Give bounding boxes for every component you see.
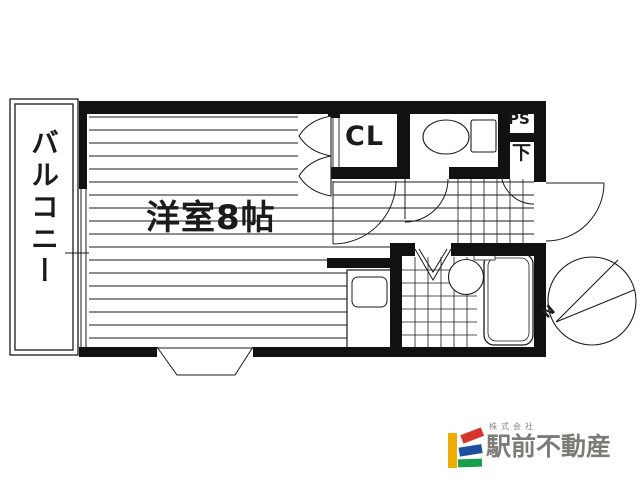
logo-bar-yellow (448, 433, 457, 468)
kitchen-sink (352, 277, 387, 307)
balcony-label: バルコニー (29, 128, 57, 343)
window-bay (157, 347, 253, 375)
toilet-bowl (423, 120, 469, 154)
room-door (333, 181, 396, 244)
compass (548, 257, 636, 345)
closet-label: CL (345, 123, 384, 150)
logo-bar-red (460, 427, 484, 443)
room-label: 洋室8帖 (146, 201, 276, 235)
toilet-tank (471, 120, 496, 152)
company-name: 駅前不動産 (486, 434, 611, 459)
shoe-box-label: 下 (512, 144, 531, 163)
logo-bar-blue (459, 444, 483, 456)
pipe-space-label: PS (508, 112, 530, 127)
entrance-door (546, 183, 604, 241)
bath-sink (449, 260, 484, 295)
floorplan-image: バルコニー 洋室8帖 CL PS 下 N 株式会社 駅前不動産 (0, 0, 640, 480)
toilet-fixture (423, 120, 496, 154)
toilet-door (405, 179, 448, 222)
floorplan-drawing (0, 0, 640, 480)
entry-tile-grid (458, 179, 523, 243)
company-prefix: 株式会社 (489, 423, 537, 431)
balcony-window (65, 189, 89, 347)
logo-bar-green (458, 459, 482, 468)
bathroom-bifold-door (415, 249, 451, 280)
kitchenette-unit (347, 270, 392, 348)
bathtub (484, 254, 533, 345)
company-logo-mark (448, 427, 484, 468)
